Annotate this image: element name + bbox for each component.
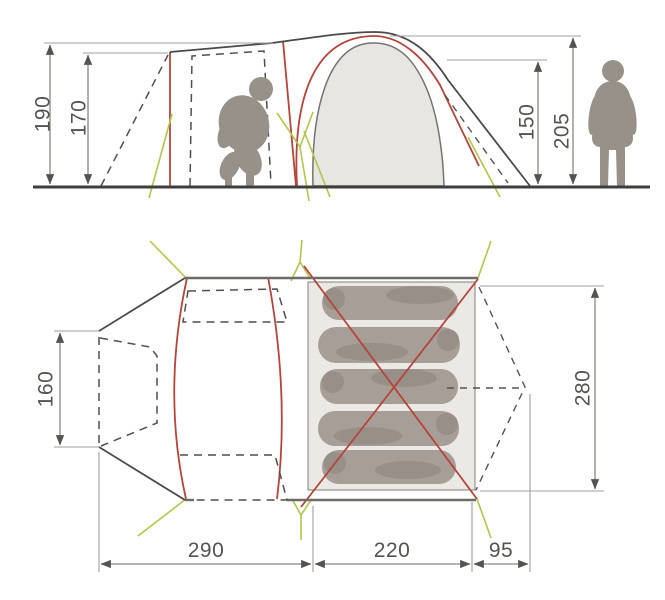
- diagram-canvas: 190 170 150 205: [0, 0, 665, 600]
- guy-line: [300, 112, 313, 147]
- guy-line: [300, 262, 310, 278]
- middle-pole: [283, 41, 296, 186]
- guy-line: [138, 499, 186, 536]
- tent-dimensions-diagram: 190 170 150 205: [0, 0, 665, 600]
- sleeper-figure: [318, 411, 459, 446]
- guy-line: [292, 499, 301, 540]
- sleeper-figure: [320, 369, 458, 404]
- guy-line: [291, 240, 302, 281]
- side-view: 190 170 150 205: [31, 32, 650, 201]
- crouching-person-silhouette: [212, 77, 276, 188]
- guy-line: [477, 499, 491, 538]
- standing-person-silhouette: [586, 60, 638, 187]
- living-area-length-label: 290: [188, 539, 225, 562]
- nose-edge: [99, 278, 185, 331]
- sleeping-people: [318, 286, 460, 484]
- floor-plan: 160 280 290 220 95: [34, 240, 604, 572]
- front-door-dashed: [100, 338, 157, 446]
- guy-line: [149, 114, 172, 198]
- canopy-height-label: 190: [31, 96, 54, 133]
- side-view-dimensions: 190 170 150 205: [31, 36, 581, 184]
- front-width-label: 160: [34, 371, 57, 408]
- inner-slope-dashed: [445, 95, 508, 183]
- rear-beak-length-label: 95: [489, 539, 513, 562]
- nose-edge: [99, 447, 185, 500]
- sleeper-figure: [322, 286, 458, 320]
- guy-line: [150, 241, 187, 279]
- sleeper-figure: [318, 327, 460, 363]
- door-height-label: 170: [67, 100, 90, 137]
- sleeping-width-label: 280: [571, 370, 594, 407]
- dome-peak-height-label: 205: [550, 113, 573, 150]
- sleeping-cabin-length-label: 220: [374, 539, 411, 562]
- side-view-dashed-lines: [101, 51, 508, 186]
- guy-line: [478, 241, 491, 278]
- guy-line: [301, 500, 311, 515]
- side-door-dashed-bottom: [180, 455, 287, 500]
- inner-cabin-height-label: 150: [515, 104, 538, 141]
- hoop-pole-arc: [268, 277, 282, 499]
